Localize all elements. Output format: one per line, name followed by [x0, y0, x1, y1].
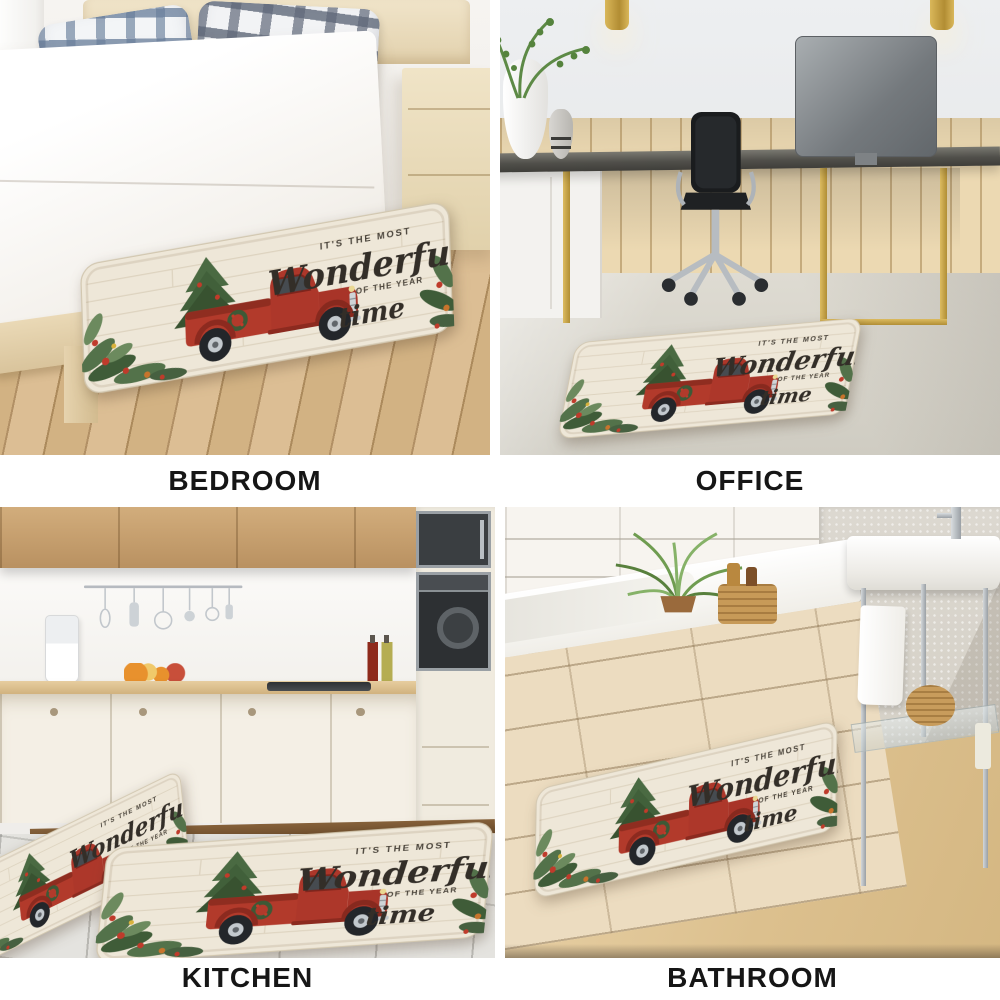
cabinet-knob	[50, 708, 58, 716]
wicker-basket-with-bottles	[718, 584, 777, 625]
chrome-faucet	[951, 507, 962, 539]
caption-kitchen: KITCHEN	[0, 958, 495, 1000]
desk-gold-leg	[563, 168, 570, 323]
bottom-shadow	[505, 944, 1000, 958]
white-blender	[45, 615, 80, 682]
computer-monitor	[795, 36, 937, 156]
built-in-microwave	[416, 511, 491, 569]
caption-bedroom: BEDROOM	[0, 455, 490, 507]
under-desk-shadow	[600, 168, 960, 286]
built-in-oven	[416, 572, 491, 670]
lower-cream-cabinets	[0, 694, 416, 823]
cabinet-knob	[356, 708, 364, 716]
hanging-utensil-rail	[84, 575, 242, 656]
cooktop	[267, 682, 371, 691]
desk-gold-leg	[940, 168, 947, 323]
desk-gold-leg	[820, 168, 827, 323]
upper-wood-cabinets	[0, 507, 416, 568]
cabinet-knob	[139, 708, 147, 716]
lotion-bottle	[975, 723, 991, 768]
office-photo	[500, 0, 1000, 455]
office-chair	[655, 96, 775, 324]
caption-bathroom: BATHROOM	[505, 958, 1000, 1000]
desk-plant	[500, 5, 610, 105]
bathroom-photo	[505, 507, 1000, 958]
caption-office: OFFICE	[500, 455, 1000, 507]
round-wicker-basket	[906, 685, 956, 726]
cabinet-knob	[248, 708, 256, 716]
bedroom-photo	[0, 0, 490, 455]
console-sink-basin	[847, 536, 1000, 590]
rug-lifestyle-collage: IT'S THE MOST Wonderful OF THE YEAR time	[0, 0, 1000, 1000]
kitchen-photo	[0, 507, 495, 958]
oil-bottles	[366, 642, 393, 680]
under-desk-cabinet	[500, 168, 602, 318]
gold-sconce-right	[930, 0, 954, 30]
white-towel	[857, 605, 905, 706]
